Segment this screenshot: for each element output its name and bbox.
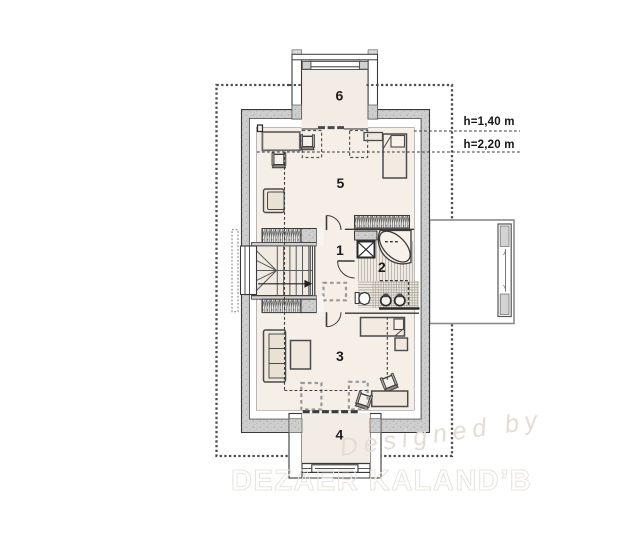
svg-text:DEZAER KALAND’B: DEZAER KALAND’B [231,465,532,497]
svg-text:2: 2 [378,259,386,275]
svg-text:h=1,40 m: h=1,40 m [464,116,515,128]
svg-text:3: 3 [336,348,344,364]
svg-text:1: 1 [336,242,344,258]
svg-text:h=2,20 m: h=2,20 m [464,139,515,151]
svg-text:6: 6 [336,88,344,104]
svg-text:5: 5 [337,175,345,191]
